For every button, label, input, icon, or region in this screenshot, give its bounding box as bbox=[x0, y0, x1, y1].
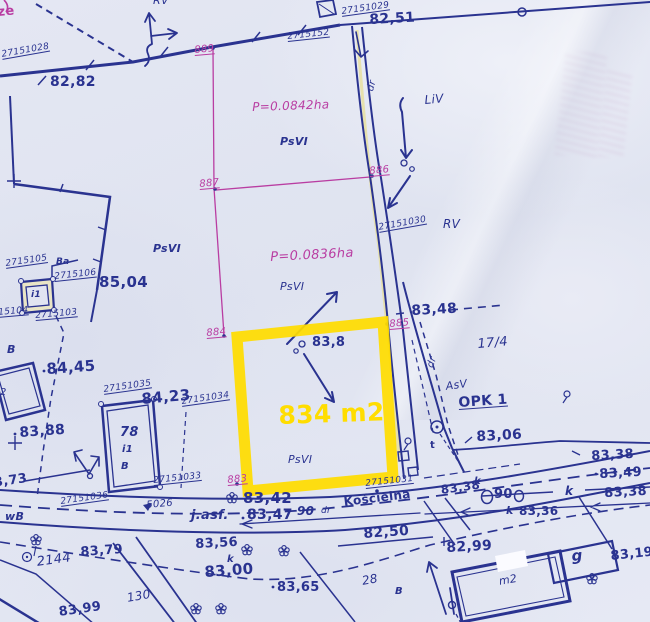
trafo-i1-label: i1 bbox=[31, 291, 41, 300]
point-887: 887 bbox=[199, 178, 220, 190]
landuse-psvi-left: PsVI bbox=[153, 243, 181, 254]
point-id-2715106: 2715106 bbox=[54, 269, 97, 282]
point-id-2715105: 2715105 bbox=[5, 254, 48, 269]
parcel-130: 130 bbox=[126, 588, 152, 604]
elev-83-06: 83,06 bbox=[476, 428, 522, 444]
elev-83-8: 83,8 bbox=[312, 336, 345, 349]
elev-83-47: 83,47 bbox=[247, 508, 293, 522]
label-k-2: k bbox=[506, 505, 514, 516]
point-889: 889 bbox=[194, 44, 215, 56]
label-dr-mid: dr bbox=[426, 356, 439, 370]
elev-82-82: 82,82 bbox=[50, 75, 96, 89]
elev-85-04: 85,04 bbox=[99, 275, 148, 290]
pipe-diameter-90: 90 bbox=[494, 488, 513, 501]
label-b-bottom: B bbox=[395, 587, 403, 597]
house-b: B bbox=[121, 462, 129, 472]
building-g: g bbox=[571, 548, 583, 564]
text-ze: ze bbox=[0, 5, 15, 19]
elev-83-99: 83,99 bbox=[58, 600, 102, 619]
label-dr-road: dr bbox=[321, 507, 331, 516]
house-i1: i1 bbox=[122, 445, 133, 455]
parcel-2144: 2144 bbox=[36, 551, 72, 569]
label-5026: 5026 bbox=[146, 499, 173, 511]
label-b-left: B bbox=[7, 344, 16, 355]
label-wb: wB bbox=[5, 511, 24, 522]
elev-83-48: 83,48 bbox=[411, 302, 457, 318]
elev-83-19: 83,19 bbox=[610, 546, 650, 563]
elev-83-42: 83,42 bbox=[243, 491, 292, 506]
point-id-27151030: 27151030 bbox=[378, 216, 427, 233]
parcel-28: 28 bbox=[361, 572, 379, 587]
point-id-2715104: 2715104 bbox=[0, 306, 29, 319]
elev-83-49: 83,49 bbox=[599, 466, 642, 481]
point-886: 886 bbox=[369, 165, 390, 177]
label-k-line: k bbox=[565, 485, 573, 497]
elev-83-56: 83,56 bbox=[195, 536, 238, 551]
label-dr-top: dr bbox=[366, 79, 379, 92]
parcel-17-4: 17/4 bbox=[477, 335, 508, 351]
point-id-27151036: 27151036 bbox=[60, 491, 109, 507]
elev-83-65: 83,65 bbox=[277, 581, 320, 594]
building-m2-left: m2 bbox=[0, 388, 7, 398]
label-rv-mid: RV bbox=[443, 218, 460, 230]
label-rv-top: RV bbox=[153, 0, 169, 6]
landuse-psvi-2: PsVI bbox=[280, 281, 304, 292]
landuse-psvi-1: PsVI bbox=[280, 136, 308, 147]
label-asv: AsV bbox=[445, 378, 468, 392]
elev-82-99: 82,99 bbox=[446, 539, 492, 555]
highlight-area-label: 834 m2 bbox=[278, 399, 385, 428]
elev-83-36: 83,36 bbox=[519, 505, 558, 517]
street-koscielna: Kościelna bbox=[343, 488, 411, 508]
elev-83-88: 83,88 bbox=[19, 423, 66, 440]
label-t: t bbox=[430, 441, 435, 451]
point-id-2715103: 2715103 bbox=[35, 308, 78, 321]
point-885: 885 bbox=[389, 318, 410, 330]
elev-83-73: 83,73 bbox=[0, 472, 28, 491]
label-jasf: j.asf. bbox=[191, 509, 229, 522]
elev-83-79: 83,79 bbox=[80, 543, 123, 559]
house-number-78: 78 bbox=[120, 426, 139, 439]
building-m2-right: m2 bbox=[498, 573, 518, 587]
map-labels: ze2715102882,82RV88927151522715102982,51… bbox=[0, 0, 650, 622]
cadastral-map-scan: ze2715102882,82RV88927151522715102982,51… bbox=[0, 0, 650, 622]
point-id-2715152: 2715152 bbox=[287, 29, 330, 42]
elev-84-45: 84,45 bbox=[46, 359, 96, 377]
point-id-27151033: 27151033 bbox=[153, 472, 202, 486]
label-k-3: k bbox=[227, 555, 234, 565]
label-k-sup: k bbox=[474, 477, 481, 487]
point-883: 883 bbox=[227, 474, 248, 486]
elev-82-51: 82,51 bbox=[369, 11, 415, 27]
area-p-0836: P=0.0836ha bbox=[270, 247, 354, 264]
label-90-road: 90 bbox=[297, 505, 314, 517]
area-p-0842: P=0.0842ha bbox=[252, 98, 330, 113]
landuse-psvi-3: PsVI bbox=[288, 454, 312, 465]
label-ba: Ba bbox=[56, 258, 70, 267]
elev-82-50: 82,50 bbox=[363, 524, 410, 541]
point-884: 884 bbox=[206, 327, 227, 339]
point-id-27151028: 27151028 bbox=[1, 43, 50, 60]
label-opk1: OPK 1 bbox=[458, 393, 508, 410]
label-liv: LiV bbox=[424, 92, 444, 106]
elev-83-38-b: 83,38 bbox=[604, 485, 647, 500]
elev-83-38-a: 83,38 bbox=[591, 448, 634, 463]
